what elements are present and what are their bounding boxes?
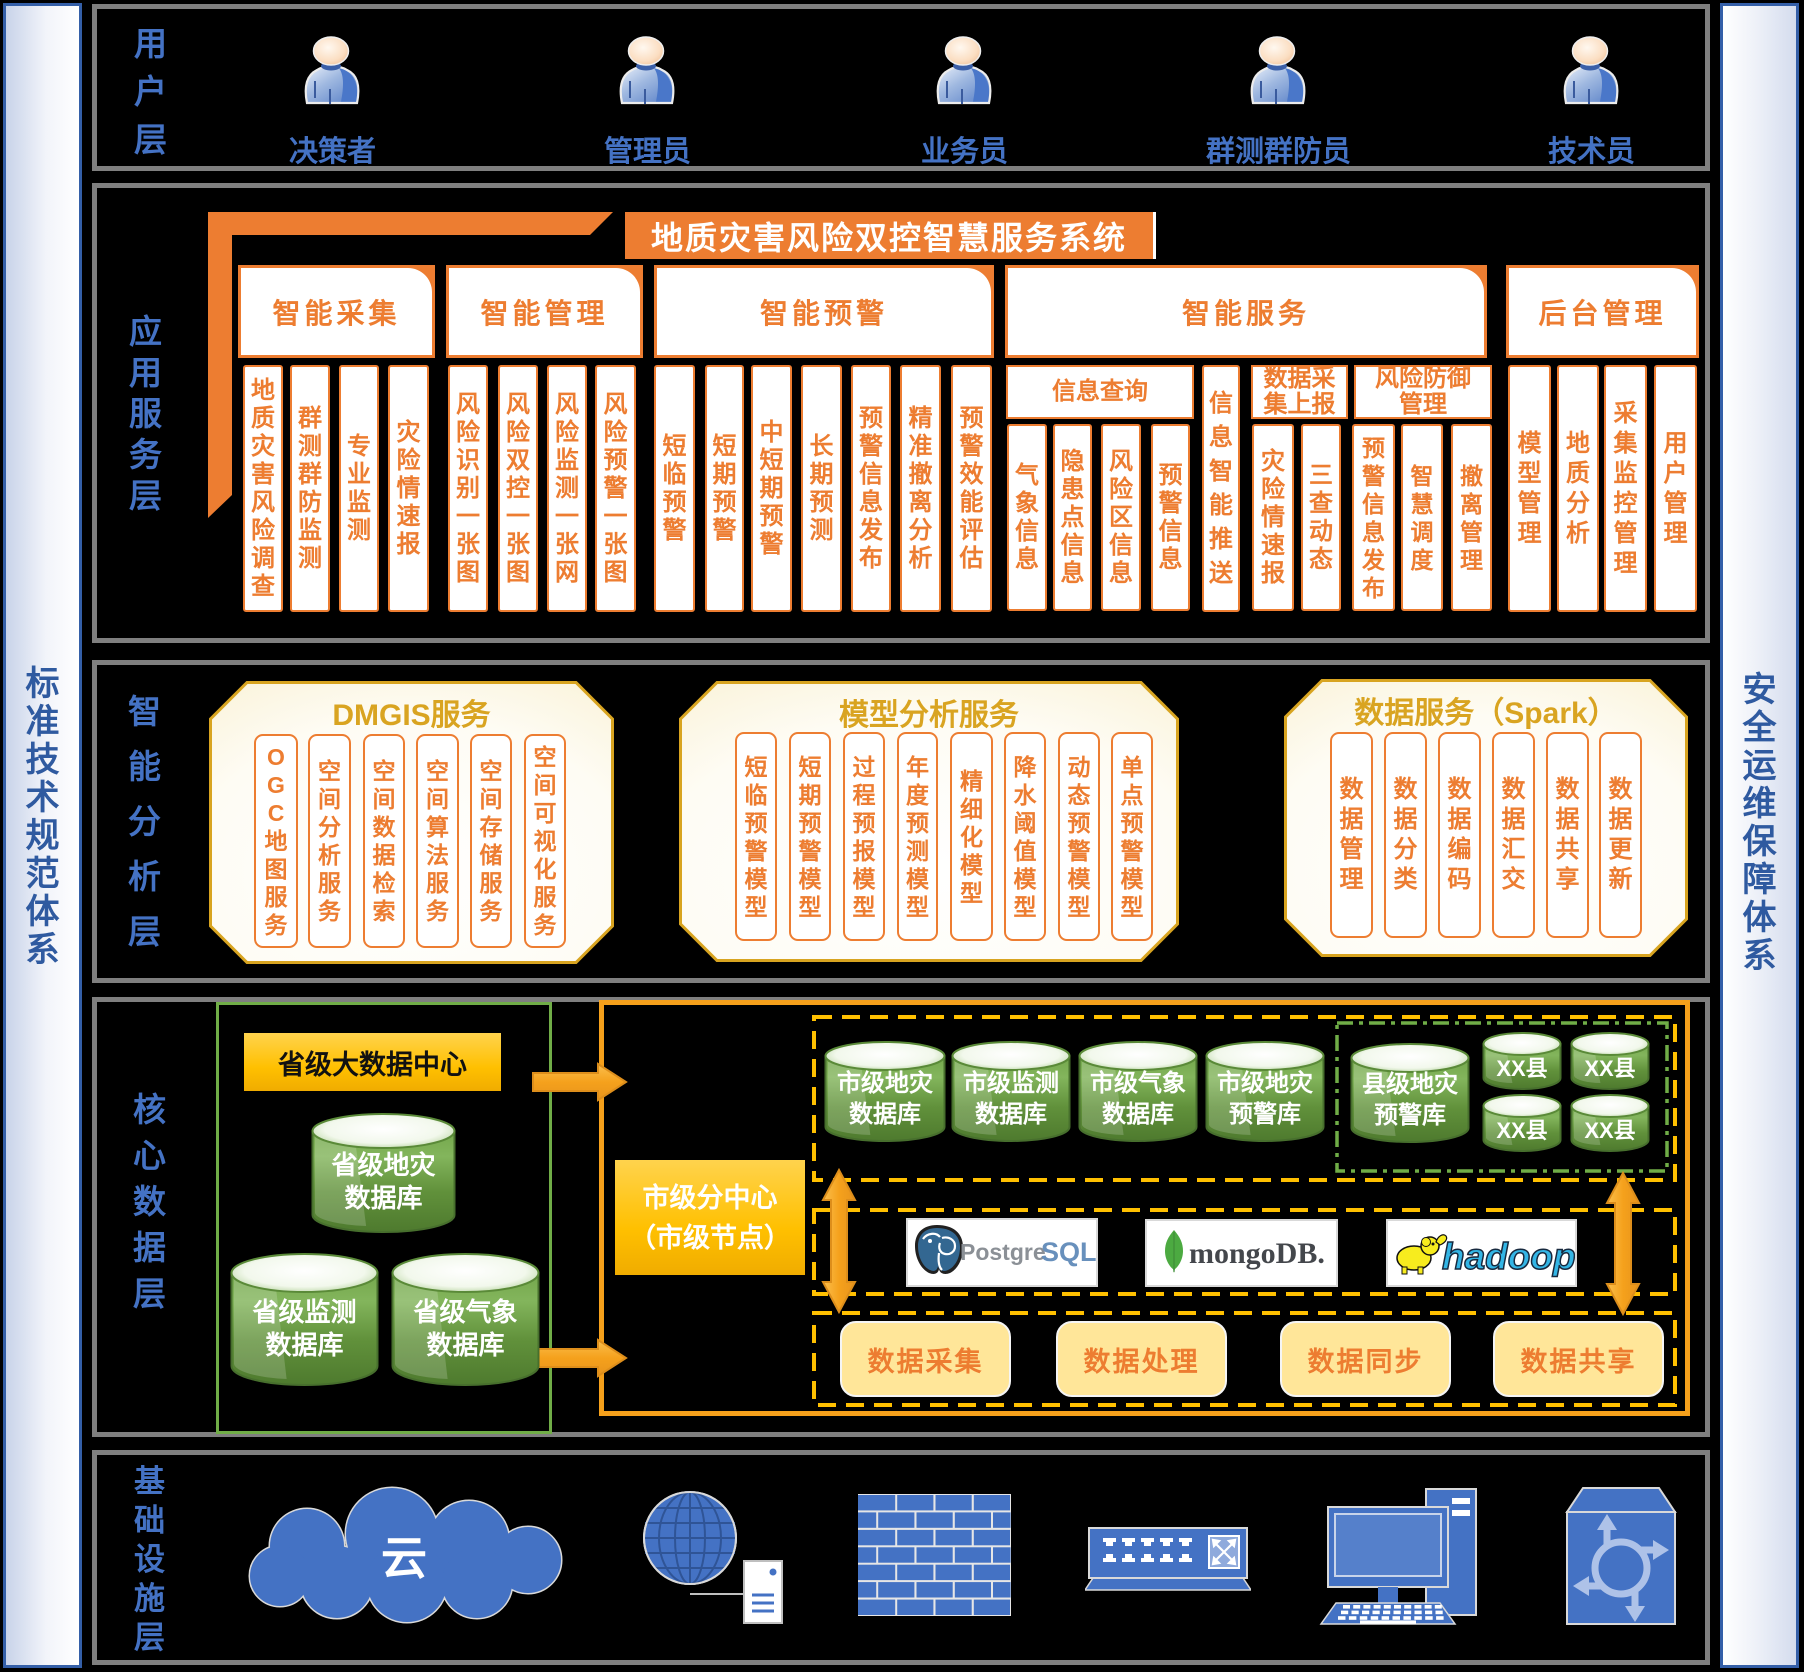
svg-text:云: 云 xyxy=(381,1532,427,1584)
svg-text:SQL: SQL xyxy=(1041,1237,1096,1267)
svg-text:hadoop: hadoop xyxy=(1442,1236,1575,1277)
svg-text:Postgre: Postgre xyxy=(960,1239,1046,1265)
svg-text:mongoDB.: mongoDB. xyxy=(1189,1237,1325,1270)
